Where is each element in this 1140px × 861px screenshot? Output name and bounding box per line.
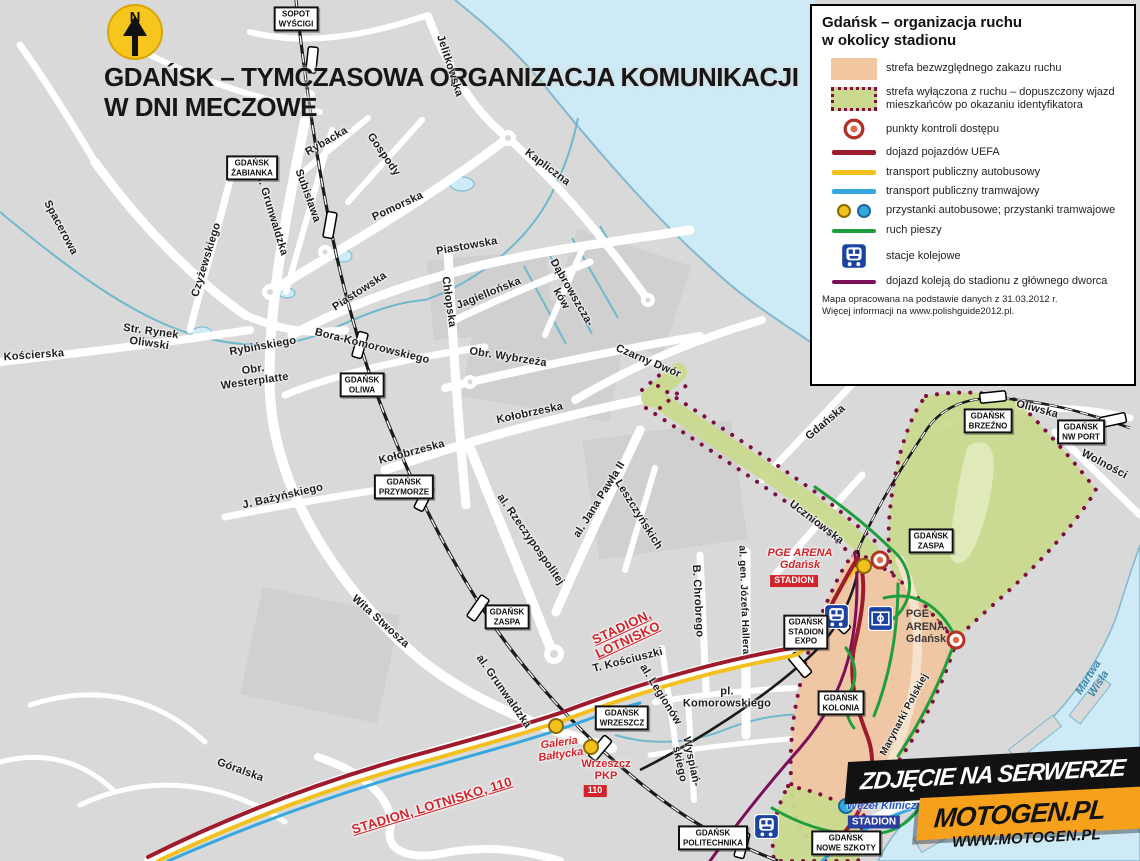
legend-footer: Mapa opracowana na podstawie danych z 31… xyxy=(822,294,1124,318)
legend-item-label: ruch pieszy xyxy=(886,224,942,237)
street-label: B. Chrobrego xyxy=(689,564,704,637)
tram-stop-icon xyxy=(857,204,871,218)
north-arrow: N xyxy=(106,2,166,69)
station-box: GDAŃSK OLIWA xyxy=(340,372,385,397)
badge-stadion-blue: STADION xyxy=(848,816,900,829)
station-box: GDAŃSK WRZESZCZ xyxy=(595,705,649,730)
legend-title: Gdańsk – organizacja ruchu w okolicy sta… xyxy=(822,14,1124,50)
control-point-icon xyxy=(843,118,865,140)
legend-item: przystanki autobusowe; przystanki tramwa… xyxy=(822,204,1124,218)
station-box: GDAŃSK STADION EXPO xyxy=(783,615,828,650)
legend-item-label: dojazd pojazdów UEFA xyxy=(886,146,1000,159)
tram-line-swatch xyxy=(832,189,876,194)
station-box: GDAŃSK KOLONIA xyxy=(818,690,865,715)
pedestrian-line-swatch xyxy=(832,229,876,233)
legend-item-label: dojazd koleją do stadionu z głównego dwo… xyxy=(886,275,1107,288)
label-pge-arena: PGE ARENA Gdańsk xyxy=(906,608,946,646)
legend-item-label: przystanki autobusowe; przystanki tramwa… xyxy=(886,204,1115,217)
rail-access-line-swatch xyxy=(832,280,876,284)
train-station-icon xyxy=(841,243,867,269)
bus-line-swatch xyxy=(832,170,876,175)
station-box: GDAŃSK PRZYMORZE xyxy=(374,474,434,499)
legend-item-label: transport publiczny tramwajowy xyxy=(886,185,1039,198)
badge-110: 110 xyxy=(584,785,607,797)
control-point-icon xyxy=(872,552,888,568)
legend-item: stacje kolejowe xyxy=(822,243,1124,269)
legend-item: ruch pieszy xyxy=(822,224,1124,237)
legend-item-label: punkty kontroli dostępu xyxy=(886,123,999,136)
legend-item-label: stacje kolejowe xyxy=(886,250,961,263)
station-box: GDAŃSK NW PORT xyxy=(1057,419,1105,444)
legend-item: strefa wyłączona z ruchu – dopuszczony w… xyxy=(822,86,1124,112)
label-wrzeszcz-pkp: Wrzeszcz PKP xyxy=(581,758,630,782)
station-box: GDAŃSK ŻABIANKA xyxy=(226,155,278,180)
station-box: GDAŃSK ZASPA xyxy=(485,604,530,629)
gdansk-traffic-map: GDAŃSK – TYMCZASOWA ORGANIZACJA KOMUNIKA… xyxy=(0,0,1140,861)
station-box: GDAŃSK BRZEŹNO xyxy=(964,408,1013,433)
legend-item: dojazd pojazdów UEFA xyxy=(822,146,1124,159)
zone-forbidden-swatch xyxy=(831,58,877,80)
legend-item: transport publiczny tramwajowy xyxy=(822,185,1124,198)
control-point-icon xyxy=(948,632,964,648)
legend-panel: Gdańsk – organizacja ruchu w okolicy sta… xyxy=(810,4,1136,386)
bus-stop-icon xyxy=(837,204,851,218)
street-label: pl. Komorowskiego xyxy=(683,686,771,709)
station-box: GDAŃSK NOWE SZKOTY xyxy=(811,830,881,855)
legend-item: transport publiczny autobusowy xyxy=(822,166,1124,179)
legend-item-label: strefa wyłączona z ruchu – dopuszczony w… xyxy=(886,86,1124,112)
zone-residents-swatch xyxy=(831,87,877,111)
badge-stadion-red: STADION xyxy=(770,575,818,587)
stadium-icon xyxy=(869,607,893,631)
station-box: GDAŃSK POLITECHNIKA xyxy=(678,825,748,850)
station-box: SOPOT WYŚCIGI xyxy=(274,6,319,31)
legend-item: strefa bezwzględnego zakazu ruchu xyxy=(822,58,1124,80)
station-box: GDAŃSK ZASPA xyxy=(909,528,954,553)
legend-item-label: transport publiczny autobusowy xyxy=(886,166,1040,179)
label-pge-arena-red: PGE ARENA Gdańsk xyxy=(768,547,833,571)
legend-item-label: strefa bezwzględnego zakazu ruchu xyxy=(886,62,1062,75)
train-station-icon xyxy=(755,815,779,839)
legend-item: dojazd koleją do stadionu z głównego dwo… xyxy=(822,275,1124,288)
legend-item: punkty kontroli dostępu xyxy=(822,118,1124,140)
uefa-line-swatch xyxy=(832,150,876,155)
